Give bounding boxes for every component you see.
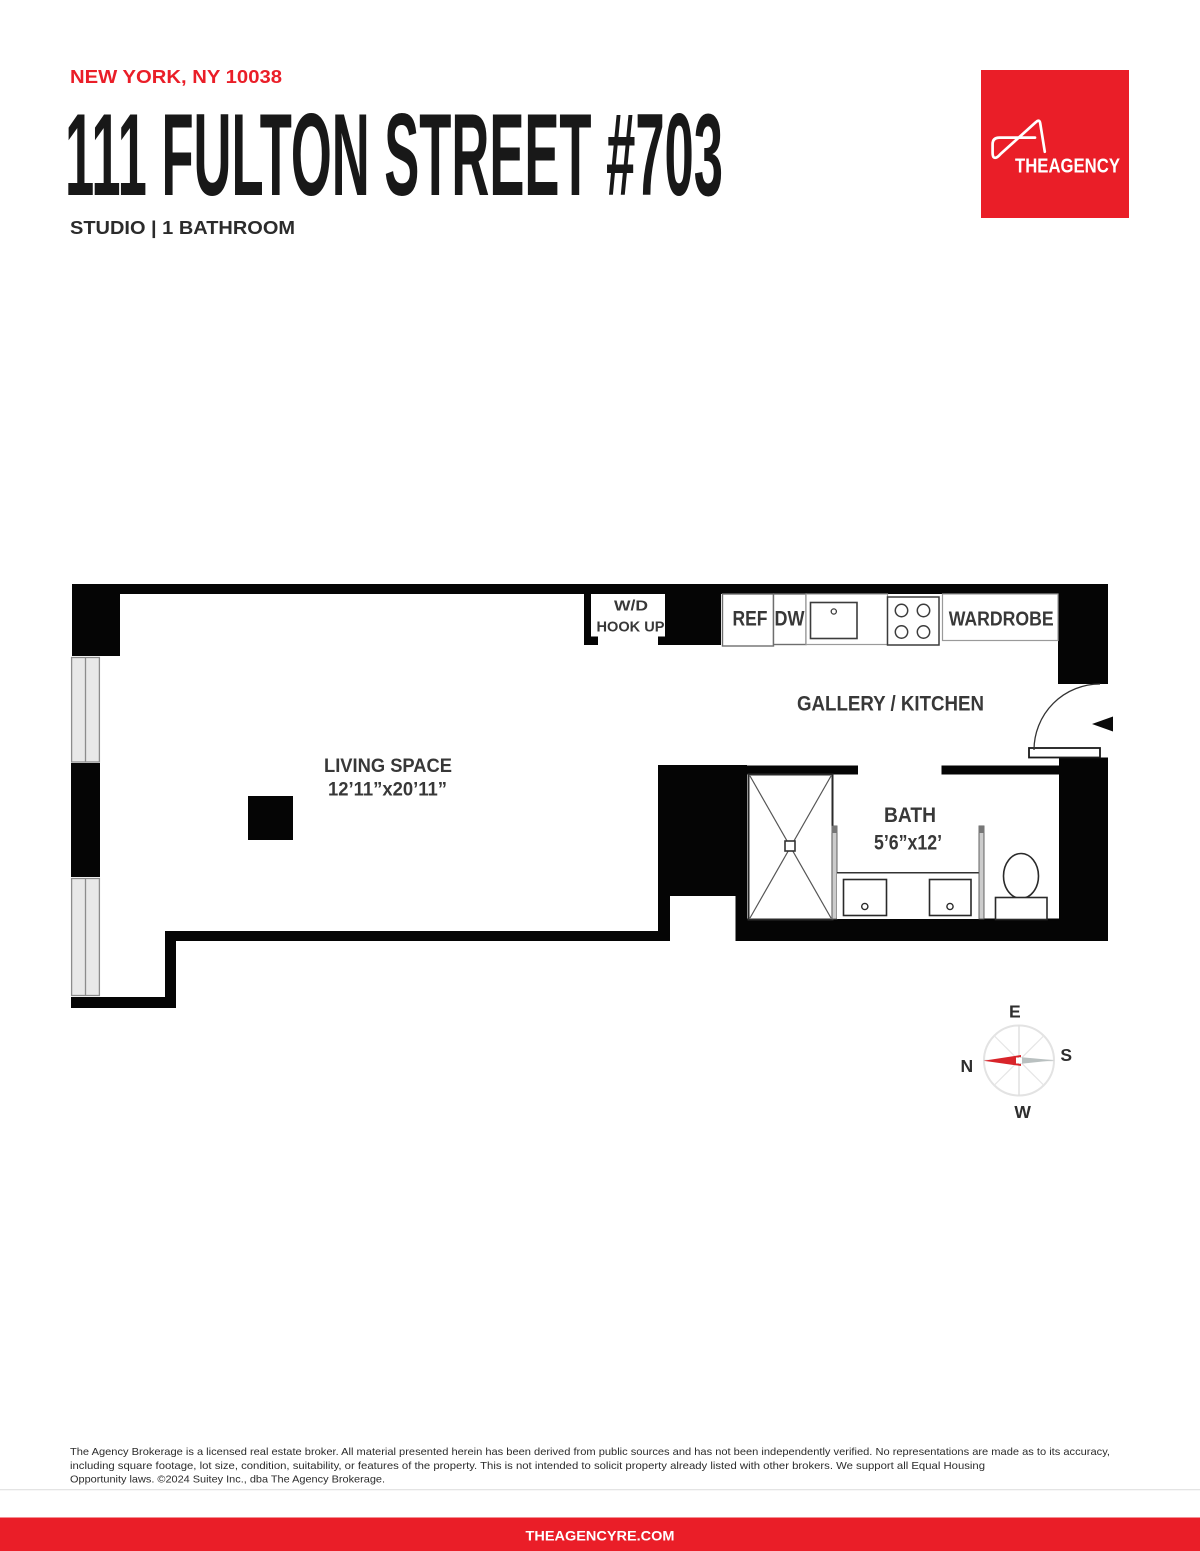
svg-text:W/D: W/D (614, 598, 648, 615)
svg-text:5’6”x12’: 5’6”x12’ (874, 831, 942, 855)
svg-text:W: W (1014, 1102, 1031, 1122)
svg-text:including square footage, lot: including square footage, lot size, cond… (70, 1461, 985, 1472)
svg-text:DW: DW (775, 608, 805, 631)
svg-text:GALLERY / KITCHEN: GALLERY / KITCHEN (797, 693, 984, 716)
svg-text:WARDROBE: WARDROBE (949, 609, 1054, 631)
svg-text:111 FULTON STREET #703: 111 FULTON STREET #703 (65, 89, 723, 220)
svg-text:12’11”x20’11”: 12’11”x20’11” (328, 780, 447, 801)
svg-text:THEAGENCYRE.COM: THEAGENCYRE.COM (526, 1529, 675, 1544)
svg-text:Opportunity laws. ©2024 Suitey: Opportunity laws. ©2024 Suitey Inc., dba… (70, 1475, 385, 1486)
svg-text:LIVING SPACE: LIVING SPACE (324, 756, 452, 777)
svg-text:HOOK UP: HOOK UP (597, 619, 665, 636)
svg-text:BATH: BATH (884, 803, 936, 827)
svg-text:N: N (960, 1056, 973, 1076)
svg-text:E: E (1009, 1001, 1021, 1021)
svg-text:NEW YORK, NY 10038: NEW YORK, NY 10038 (70, 67, 282, 87)
svg-text:REF: REF (733, 608, 768, 631)
svg-text:S: S (1060, 1045, 1072, 1065)
svg-text:The Agency Brokerage is a lice: The Agency Brokerage is a licensed real … (70, 1447, 1110, 1458)
svg-text:STUDIO | 1 BATHROOM: STUDIO | 1 BATHROOM (70, 218, 295, 238)
svg-text:THEAGENCY: THEAGENCY (1015, 155, 1121, 177)
